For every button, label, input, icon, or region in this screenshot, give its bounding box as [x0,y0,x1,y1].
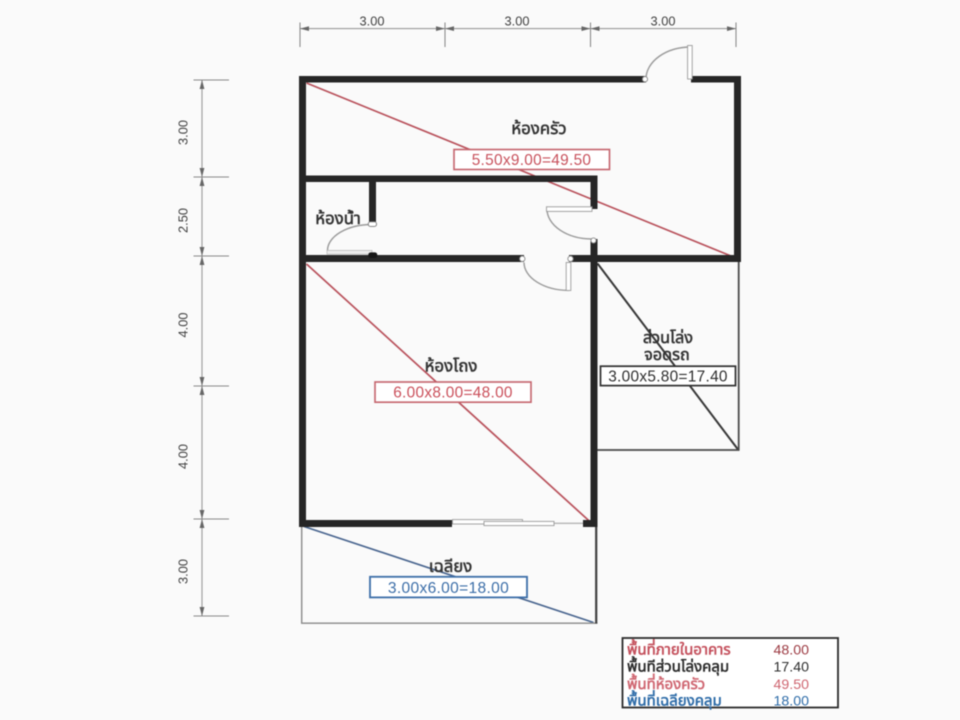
svg-text:3.00x6.00=18.00: 3.00x6.00=18.00 [388,580,509,597]
svg-text:49.50: 49.50 [773,677,809,693]
svg-text:3.00: 3.00 [360,13,385,28]
svg-text:3.00: 3.00 [505,13,530,28]
svg-text:48.00: 48.00 [773,643,809,659]
svg-text:6.00x8.00=48.00: 6.00x8.00=48.00 [393,385,513,402]
svg-text:4.00: 4.00 [176,444,191,469]
svg-text:2.50: 2.50 [176,208,191,233]
svg-text:3.00: 3.00 [176,559,191,584]
svg-text:17.40: 17.40 [773,660,809,676]
svg-text:4.00: 4.00 [176,313,191,338]
svg-text:3.00: 3.00 [176,120,191,145]
svg-text:18.00: 18.00 [773,694,809,710]
svg-text:3.00x5.80=17.40: 3.00x5.80=17.40 [608,368,728,385]
svg-text:3.00: 3.00 [651,13,676,28]
svg-text:5.50x9.00=49.50: 5.50x9.00=49.50 [472,152,592,169]
